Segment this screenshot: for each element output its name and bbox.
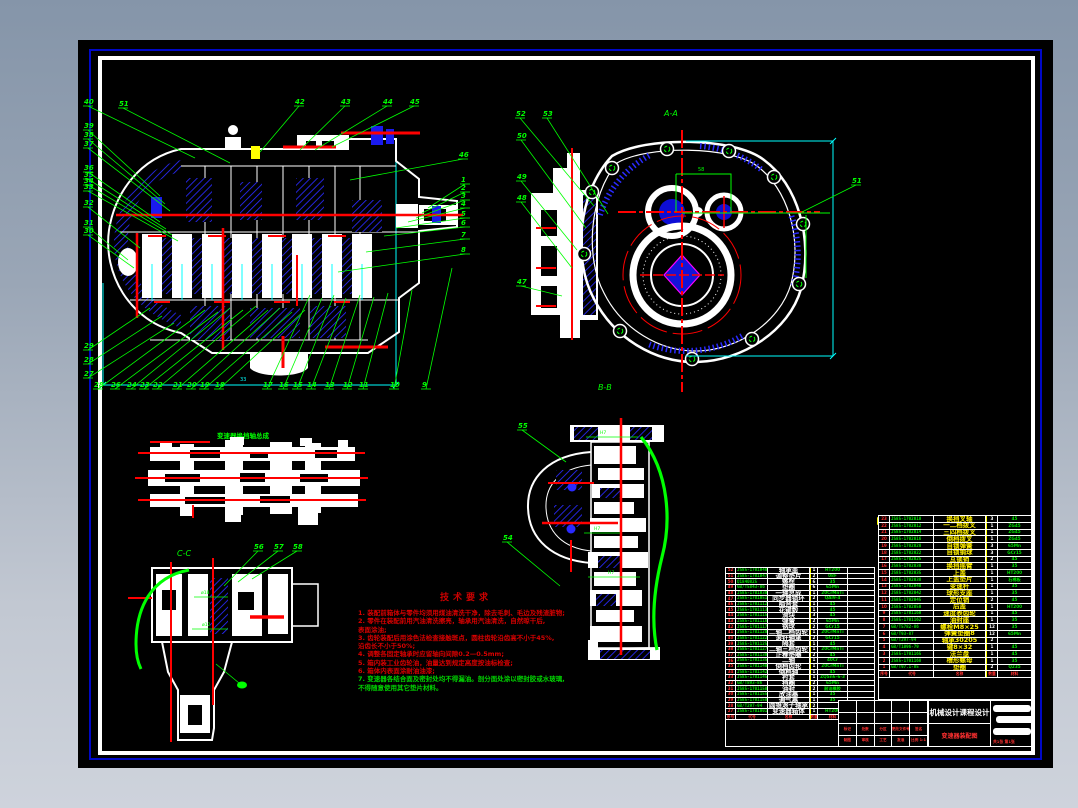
callout-number: 51 — [119, 100, 129, 108]
callout-leader — [366, 239, 465, 252]
table-cell: 1 — [810, 630, 818, 635]
callout-number: 11 — [359, 381, 369, 389]
callout-number: 20 — [187, 381, 197, 389]
table-cell: JS85-1701112 — [736, 602, 768, 607]
callout-number: 53 — [543, 110, 553, 118]
callout-number: 16 — [279, 381, 289, 389]
table-cell — [848, 664, 872, 669]
callout-number: 24 — [127, 381, 137, 389]
table-cell: 35 — [998, 590, 1031, 596]
table-row: 23JS85-1702010换挡叉轴345 — [879, 516, 1031, 523]
table-cell — [848, 653, 872, 658]
table-cell: 互锁销 — [934, 557, 986, 563]
shift-assembly-view: 变速器换挡轴总成 — [135, 431, 368, 525]
title-block-grid-cell: 比例 1:1 — [910, 736, 928, 747]
callout-number: 32 — [84, 199, 94, 207]
table-row: 12JS85-1702042球形支座135 — [879, 590, 1031, 597]
table-row: 14JS85-1702038上盖垫片1石棉板 — [879, 577, 1031, 584]
table-cell: JS85-1701116 — [736, 619, 768, 624]
callout-number: 45 — [410, 98, 420, 106]
table-cell — [848, 574, 872, 579]
callout-number: 54 — [503, 534, 513, 542]
table-cell: 49 — [726, 585, 736, 590]
table-cell: 1 — [986, 530, 998, 536]
callout-leader — [522, 430, 566, 462]
table-cell: JS85-1701030 — [736, 591, 768, 596]
table-cell — [848, 568, 872, 573]
table-cell: 倒档轴 — [768, 670, 810, 675]
table-cell: JS85-1702038 — [890, 577, 934, 583]
table-cell: 自锁弹簧 — [934, 543, 986, 549]
table-cell: 48 — [726, 591, 736, 596]
table-cell: 数量 — [810, 715, 818, 720]
table-cell: JS85-1701125 — [736, 641, 768, 646]
callout-number: 13 — [325, 381, 335, 389]
table-cell: 1 — [810, 709, 818, 714]
table-cell: 4 — [879, 644, 890, 650]
callout-number: 42 — [295, 98, 305, 106]
table-cell: 22 — [879, 523, 890, 529]
table-cell: 45 — [818, 641, 848, 646]
table-cell: 45 — [818, 607, 848, 612]
title-block-grid-row — [839, 701, 928, 713]
callout-number: 8 — [461, 246, 466, 254]
callout-number: 48 — [517, 194, 527, 202]
table-cell: 27 — [726, 709, 736, 714]
table-cell: JS85-1702042 — [890, 590, 934, 596]
parts-table-right: 23JS85-1702010换挡叉轴34522JS85-1702012一二档拨叉… — [878, 515, 1032, 700]
table-row: 7GB/T5782-86螺栓M8×251235 — [879, 624, 1031, 631]
table-cell: GB/T5843-86 — [736, 585, 768, 590]
table-cell: 19 — [879, 543, 890, 549]
title-block-grid-cell: 制图 — [839, 736, 857, 747]
table-cell — [848, 675, 872, 680]
table-cell: 1 — [810, 658, 818, 663]
table-row: 6GB/T93-87弹簧垫圈81265Mn — [879, 631, 1031, 638]
callout-leader — [426, 268, 452, 389]
table-cell: JS85-1702025 — [890, 557, 934, 563]
title-block-grid-cell: 处数 — [857, 724, 875, 735]
table-cell: 46 — [726, 602, 736, 607]
table-cell — [848, 585, 872, 590]
table-cell: 08F — [818, 574, 848, 579]
table-cell: 38 — [726, 647, 736, 652]
table-row: 10JS85-1702050后盖1HT200 — [879, 604, 1031, 611]
section-cc-view: C-C ø18 — [128, 549, 318, 742]
table-cell: JS85-1701158 — [736, 698, 768, 703]
table-cell: 35 — [726, 664, 736, 669]
table-cell: 倒档拨叉 — [934, 536, 986, 542]
bb-fit-3: H7 — [608, 570, 614, 576]
table-cell: 2 — [810, 681, 818, 686]
table-cell: JS85-1702014 — [890, 530, 934, 536]
callout-number: 56 — [254, 543, 264, 551]
table-cell: 倒档齿轮 — [768, 664, 810, 669]
callout-number: 2 — [461, 184, 466, 192]
table-cell: 65Mn — [998, 543, 1031, 549]
callout-number: 6 — [461, 219, 466, 227]
table-cell: 上盖垫片 — [934, 577, 986, 583]
title-block-center: 机械设计课程设计 变速器装配图 — [929, 701, 991, 746]
table-cell: 20CrMnTi — [818, 591, 848, 596]
table-cell: 44 — [726, 613, 736, 618]
table-cell: 37 — [726, 653, 736, 658]
table-cell: 65Mn — [818, 585, 848, 590]
table-cell — [998, 638, 1031, 644]
table-cell: 1 — [986, 536, 998, 542]
table-cell: 衬套 — [768, 675, 810, 680]
table-cell: 28 — [726, 703, 736, 708]
callout-number: 58 — [293, 543, 303, 551]
callout-number: 10 — [390, 381, 400, 389]
callout-number: 19 — [200, 381, 210, 389]
callout-leader — [802, 185, 856, 212]
table-cell: 7 — [879, 624, 890, 630]
table-cell: GB/T1096-79 — [890, 644, 934, 650]
sheet-count: 共1张 第1张 — [993, 739, 1015, 745]
title-block-grid-cell — [839, 701, 857, 712]
callout-number: 28 — [84, 356, 94, 364]
table-cell: 52 — [726, 568, 736, 573]
table-cell: JS85-1702045 — [890, 597, 934, 603]
table-cell: 18 — [879, 550, 890, 556]
table-cell: 45 — [998, 516, 1031, 522]
table-cell: JS85-1701051 — [736, 596, 768, 601]
table-cell: 法兰盘 — [934, 651, 986, 657]
table-cell: 36 — [726, 658, 736, 663]
table-cell: 42 — [726, 624, 736, 629]
callout-number: 50 — [517, 132, 527, 140]
table-cell: JS85-1701130 — [736, 653, 768, 658]
table-cell: GCr15 — [998, 550, 1031, 556]
callout-number: 3 — [461, 192, 466, 200]
table-cell: 自锁钢球 — [934, 550, 986, 556]
table-cell — [848, 670, 872, 675]
table-cell: 12 — [986, 624, 998, 630]
table-cell: JS85-1701165 — [890, 651, 934, 657]
signature-box — [993, 728, 1031, 735]
table-cell: 一轴总成 — [768, 591, 810, 596]
title-block-grid-cell — [910, 713, 928, 724]
table-cell: 13 — [879, 584, 890, 590]
callout-number: 43 — [341, 98, 351, 106]
callout-number: 30 — [84, 227, 94, 235]
table-cell — [848, 686, 872, 691]
table-cell: 2 — [810, 686, 818, 691]
table-cell: 2 — [986, 638, 998, 644]
table-cell: 45 — [998, 644, 1031, 650]
table-cell: 放油塞 — [768, 692, 810, 697]
callout-number: 49 — [517, 173, 527, 181]
table-cell: 垫圈 — [768, 585, 810, 590]
table-cell: JS85-1701122 — [736, 636, 768, 641]
table-cell: 通气塞 — [768, 698, 810, 703]
table-cell: JS85-1702035 — [890, 570, 934, 576]
table-cell: JS85-1701120 — [736, 630, 768, 635]
table-cell: 1 — [986, 563, 998, 569]
table-cell: JS85-1701113 — [736, 607, 768, 612]
table-cell: 50 — [726, 579, 736, 584]
table-cell: JS85-1702030 — [890, 563, 934, 569]
technical-note-line: 1. 装配前箱体与零件均须用煤油清洗干净，除去毛刺、毛边及残渣脏物; — [358, 609, 600, 617]
table-cell: 变速器箱体 — [768, 709, 810, 714]
table-cell: 后盖 — [934, 604, 986, 610]
table-cell: 石棉板 — [998, 577, 1031, 583]
title-block-grid-cell — [857, 701, 875, 712]
callout-layer: 4051393837363534333231302928274243444546… — [83, 98, 862, 586]
table-cell: GB/T97.1-85 — [890, 665, 934, 671]
table-cell: 三四档拨叉 — [934, 530, 986, 536]
table-cell: ZQSn6-6-3 — [818, 675, 848, 680]
table-cell: ZG45 — [998, 530, 1031, 536]
table-cell: 45 — [818, 670, 848, 675]
bb-fit-2: H7 — [594, 526, 600, 532]
title-block-grid-cell — [892, 713, 910, 724]
table-cell: 止推垫圈 — [768, 653, 810, 658]
table-cell: 1 — [810, 664, 818, 669]
table-cell — [848, 591, 872, 596]
table-cell: JS85-1701168 — [890, 658, 934, 664]
callout-number: 31 — [84, 219, 94, 227]
table-cell: 1 — [810, 602, 818, 607]
table-cell — [848, 624, 872, 629]
table-cell: JS85-1701127 — [736, 647, 768, 652]
table-cell: 20CrMnTi — [818, 664, 848, 669]
table-cell: 45 — [726, 607, 736, 612]
table-cell: 40Cr — [818, 658, 848, 663]
table-cell: 1 — [986, 570, 998, 576]
table-row: 15JS85-1702035上盖1HT200 — [879, 570, 1031, 577]
table-cell: 12 — [986, 631, 998, 637]
table-cell: 代号 — [736, 715, 768, 720]
table-cell: 调整垫片 — [768, 574, 810, 579]
table-cell: 2 — [986, 597, 998, 603]
title-block-grid-cell — [910, 701, 928, 712]
callout-number: 17 — [263, 381, 273, 389]
table-row: 20JS85-1702016倒档拨叉1ZG45 — [879, 536, 1031, 543]
table-cell: 40 — [726, 636, 736, 641]
table-cell: JS85-1702050 — [890, 604, 934, 610]
table-cell: 45 — [818, 613, 848, 618]
table-cell: 1 — [986, 658, 998, 664]
desktop-background: 33 — [0, 0, 1078, 808]
callout-number: 23 — [140, 381, 150, 389]
table-cell: 3 — [986, 550, 998, 556]
table-cell: 1 — [986, 577, 998, 583]
technical-note-line: 沿齿长不小于50%; — [358, 642, 600, 650]
title-block-grid-cell — [875, 713, 893, 724]
table-cell: 2 — [810, 596, 818, 601]
table-cell: 35 — [818, 579, 848, 584]
table-cell: 弹簧 — [768, 619, 810, 624]
table-cell: HT200 — [998, 570, 1031, 576]
table-cell: 3 — [810, 613, 818, 618]
table-cell: JS85-1702020 — [890, 543, 934, 549]
table-cell: 45 — [998, 557, 1031, 563]
table-cell: 圆锥滚子轴承 — [768, 703, 810, 708]
table-cell: 17 — [879, 557, 890, 563]
table-cell: 1 — [810, 641, 818, 646]
table-cell: 一二档拨叉 — [934, 523, 986, 529]
table-cell: 滚针轴承 — [768, 636, 810, 641]
breather-plug — [251, 146, 260, 159]
table-cell: 弹簧垫圈8 — [934, 631, 986, 637]
table-cell: 35 — [818, 692, 848, 697]
table-cell: 2 — [879, 658, 890, 664]
table-cell: 上盖 — [934, 570, 986, 576]
table-cell: 序号 — [726, 715, 736, 720]
table-cell: 35 — [998, 584, 1031, 590]
table-cell: 代号 — [890, 671, 934, 677]
table-cell: 5 — [879, 638, 890, 644]
table-cell: 垫圈 — [934, 665, 986, 671]
table-cell: 1 — [810, 607, 818, 612]
table-cell: 45 — [818, 653, 848, 658]
table-cell: 33 — [726, 675, 736, 680]
table-cell: 35 — [998, 658, 1031, 664]
table-row: 1GB/T97.1-85垫圈2Q235 — [879, 665, 1031, 672]
table-cell — [848, 647, 872, 652]
table-cell: 轴承盖 — [768, 568, 810, 573]
callout-leader — [350, 159, 463, 180]
signature-box — [993, 705, 1031, 712]
table-cell: 10 — [879, 604, 890, 610]
table-cell: 螺栓 — [768, 579, 810, 584]
table-cell: 9 — [879, 611, 890, 617]
technical-requirements-title: 技术要求 — [386, 590, 546, 603]
table-cell: HT200 — [998, 604, 1031, 610]
table-cell: 同步器锁环 — [768, 596, 810, 601]
table-cell: GB/T93-87 — [890, 631, 934, 637]
callout-number: 5 — [461, 210, 466, 218]
table-row: 17JS85-1702025互锁销245 — [879, 557, 1031, 564]
table-cell: JS85-1701150 — [736, 686, 768, 691]
table-cell: 1 — [986, 617, 998, 623]
table-cell: 65Mn — [998, 631, 1031, 637]
table-cell: JS85-1701135 — [736, 658, 768, 663]
table-cell: 二轴 — [768, 658, 810, 663]
table-cell — [848, 602, 872, 607]
table-cell: 20CrMnTi — [818, 630, 848, 635]
table-row: 22JS85-1702012一二档拨叉1ZG45 — [879, 523, 1031, 530]
organization-name: 机械设计课程设计 — [929, 701, 990, 724]
table-cell: 47 — [726, 596, 736, 601]
table-cell — [848, 641, 872, 646]
table-cell — [848, 692, 872, 697]
table-cell: 65Mn — [818, 619, 848, 624]
callout-number: 33 — [84, 183, 94, 191]
bb-fit-1: H7 — [600, 430, 606, 436]
table-cell: 30 — [726, 692, 736, 697]
table-cell: JS85-1702016 — [890, 536, 934, 542]
callout-number: 12 — [343, 381, 353, 389]
table-cell: 油封座 — [934, 617, 986, 623]
callout-number: 28 — [94, 381, 104, 389]
table-cell: 啮合套 — [768, 602, 810, 607]
table-row: 9JS85-1701160速度表齿轮145 — [879, 611, 1031, 618]
table-cell: 2 — [810, 703, 818, 708]
main-section-view: 33 — [100, 125, 463, 388]
table-row: 2JS85-1701168槽形螺母135 — [879, 658, 1031, 665]
table-cell: 11 — [879, 597, 890, 603]
callout-number: 38 — [84, 131, 94, 139]
table-cell: 二轴二档齿轮 — [768, 630, 810, 635]
table-cell: 1 — [986, 651, 998, 657]
table-cell: 15 — [879, 570, 890, 576]
callout-number: 52 — [516, 110, 526, 118]
table-cell: 2 — [986, 557, 998, 563]
table-cell: Q1840825 — [736, 579, 768, 584]
table-cell: 6 — [879, 631, 890, 637]
table-cell: 1 — [986, 523, 998, 529]
table-cell — [848, 636, 872, 641]
table-cell: 3 — [986, 543, 998, 549]
callout-number: 44 — [383, 98, 393, 106]
table-cell: ZG45 — [998, 536, 1031, 542]
table-cell: 1 — [986, 611, 998, 617]
table-cell: 2 — [986, 665, 998, 671]
technical-note-line: 7. 变速器各结合面及密封处均不得漏油。剖分面处涂以密封胶或水玻璃, — [358, 675, 600, 683]
table-cell: 41 — [726, 630, 736, 635]
callout-number: 37 — [84, 140, 94, 148]
table-cell: 键8×32 — [934, 644, 986, 650]
table-cell — [848, 596, 872, 601]
table-cell: 8 — [879, 617, 890, 623]
table-cell: 1 — [879, 665, 890, 671]
title-block-grid-cell — [857, 713, 875, 724]
table-cell: 20 — [879, 536, 890, 542]
table-cell: 二轴三档齿轮 — [768, 647, 810, 652]
table-cell: 2 — [810, 636, 818, 641]
cc-dim-1: ø18 — [201, 590, 210, 596]
table-cell: 1 — [986, 584, 998, 590]
table-cell: 1 — [810, 670, 818, 675]
table-row: 13JS85-1702040变速杆135 — [879, 584, 1031, 591]
technical-requirements: 技术要求 1. 装配前箱体与零件均须用煤油清洗干净，除去毛刺、毛边及残渣脏物;2… — [358, 590, 600, 692]
table-cell: 34 — [726, 670, 736, 675]
signature-box — [996, 716, 1034, 723]
callout-leader — [394, 290, 412, 389]
table-cell: 1 — [986, 604, 998, 610]
title-block-revision-grid: 标记处数分区更改文件号签名制图审核工艺批准比例 1:1 — [839, 701, 929, 746]
table-cell: 2 — [810, 653, 818, 658]
table-cell: 换挡摇臂 — [934, 563, 986, 569]
table-cell: JS85-1701160 — [890, 611, 934, 617]
table-cell: 油封 — [768, 686, 810, 691]
title-block-grid-cell: 工艺 — [875, 736, 893, 747]
main-dim-value: 33 — [240, 377, 246, 383]
table-cell: Q235 — [998, 665, 1031, 671]
title-block-grid-cell: 更改文件号 — [892, 724, 910, 735]
table-cell — [848, 681, 872, 686]
callout-number: 1 — [461, 176, 466, 184]
table-cell: 16 — [879, 563, 890, 569]
table-cell: 螺栓M8×25 — [934, 624, 986, 630]
table-cell: JS85-1702040 — [890, 584, 934, 590]
table-cell: 23 — [879, 516, 890, 522]
table-cell: QAl9-4 — [818, 596, 848, 601]
table-cell: 名称 — [934, 671, 986, 677]
callout-number: 4 — [461, 200, 466, 208]
callout-number: 9 — [422, 381, 427, 389]
table-cell: JS85-1701155 — [736, 692, 768, 697]
title-block-grid-row: 制图审核工艺批准比例 1:1 — [839, 736, 928, 747]
table-cell: GB/T297-94 — [890, 638, 934, 644]
table-cell: 45 — [818, 602, 848, 607]
table-cell — [848, 607, 872, 612]
callout-number: 40 — [84, 98, 94, 106]
table-cell: 1 — [986, 590, 998, 596]
